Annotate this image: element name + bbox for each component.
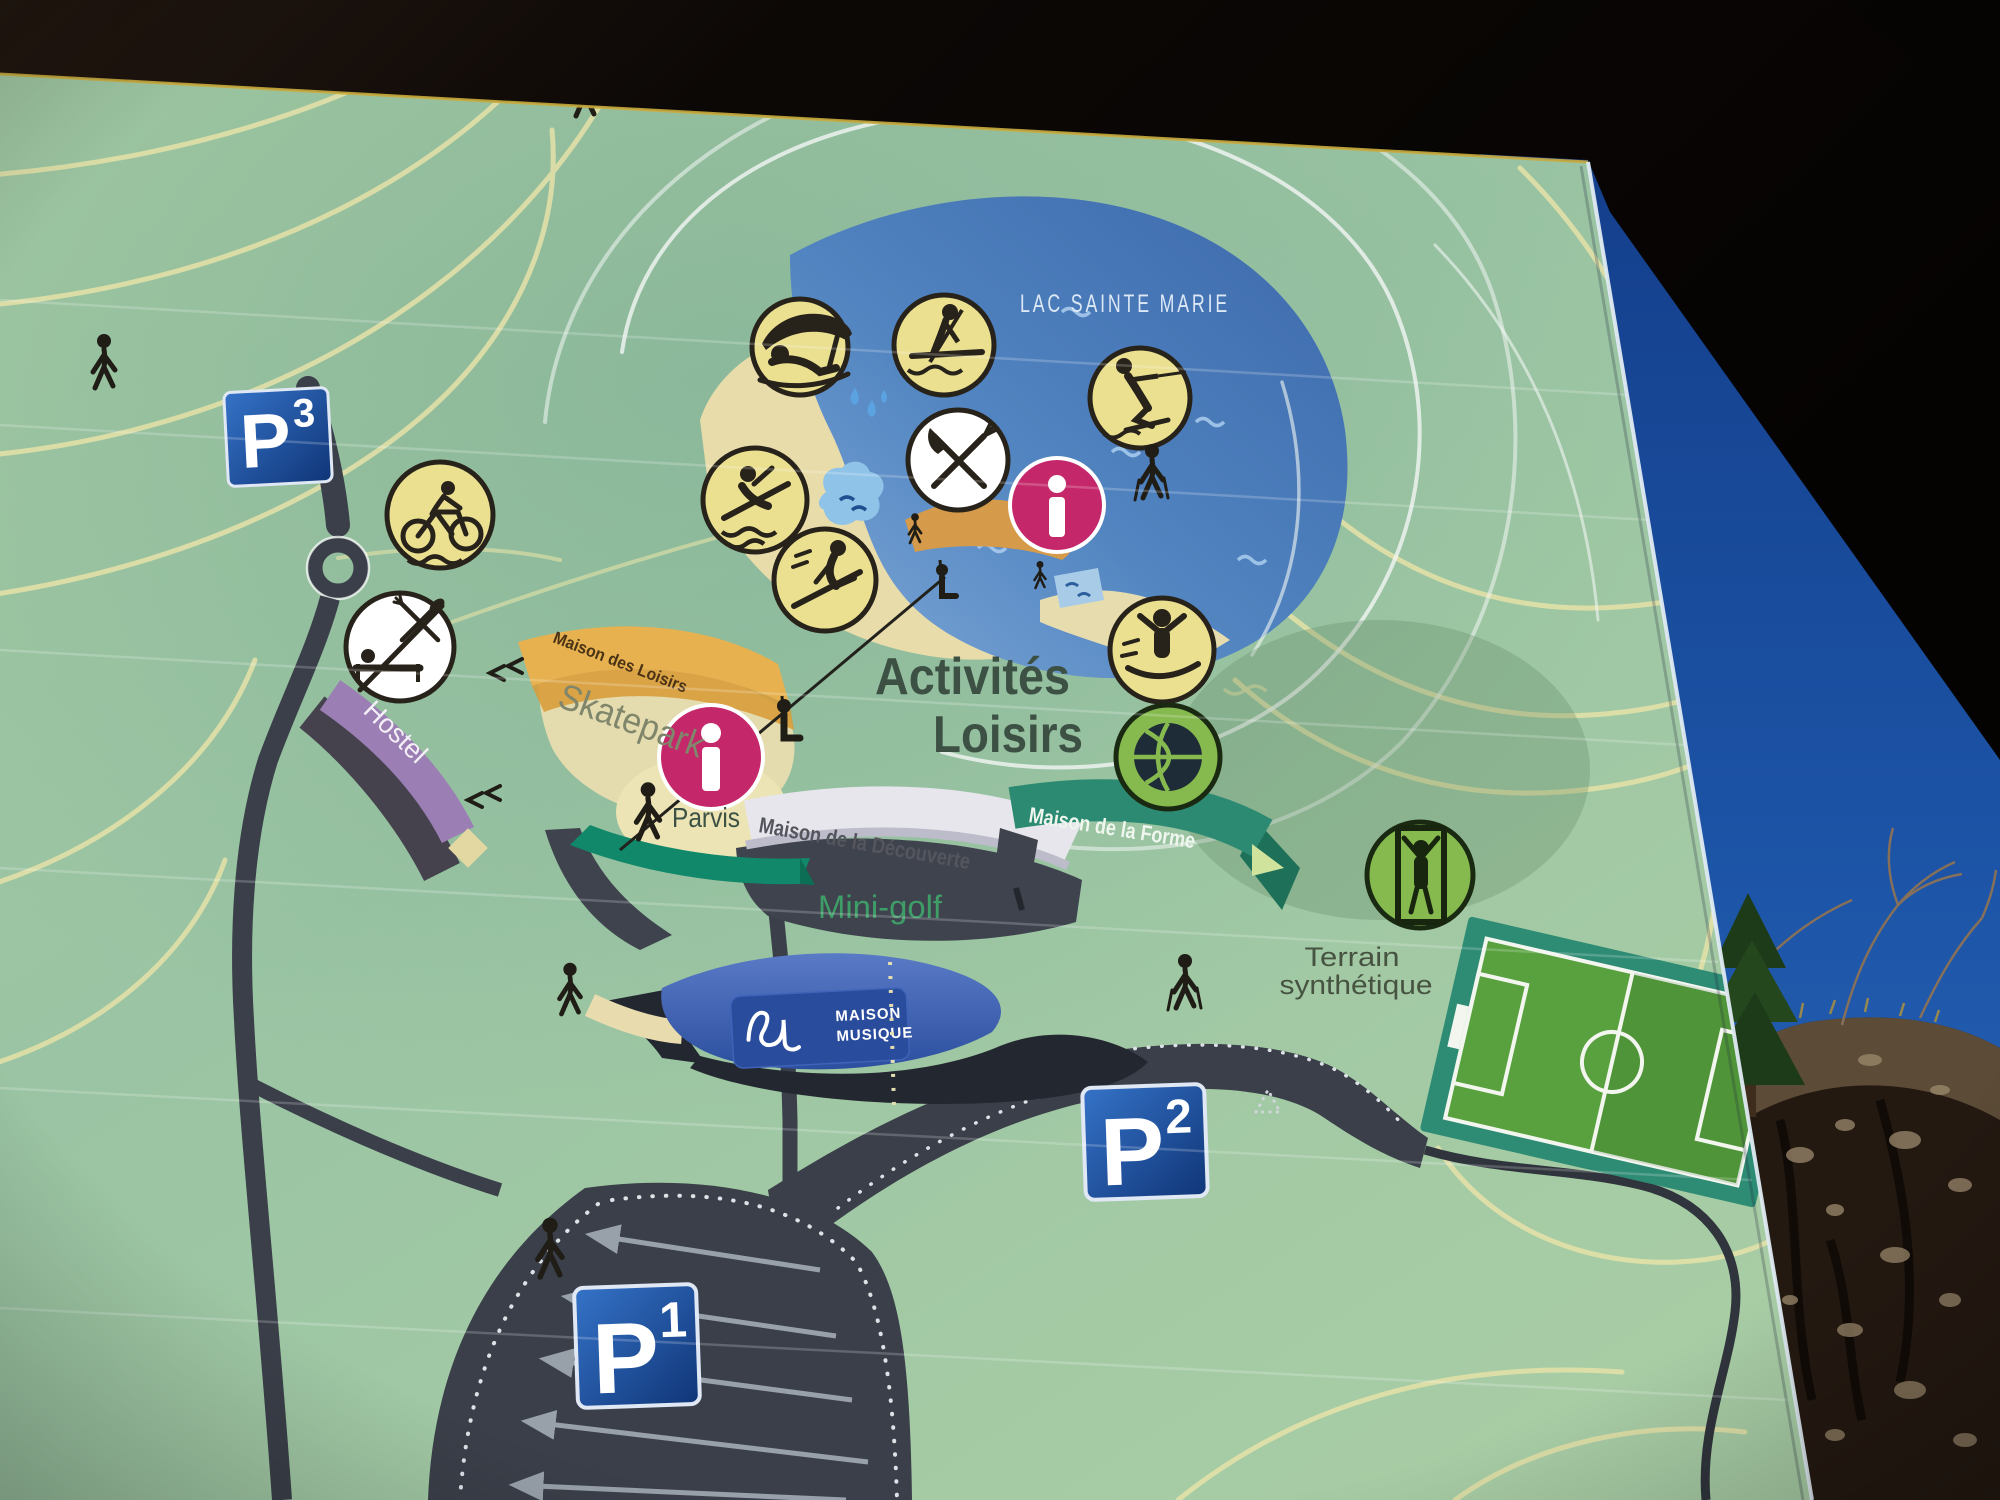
park-map-photo: MAISON MUSIQUE bbox=[0, 0, 2000, 1500]
photo-vignette bbox=[0, 0, 2000, 1500]
map-board-svg: MAISON MUSIQUE bbox=[0, 0, 2000, 1500]
